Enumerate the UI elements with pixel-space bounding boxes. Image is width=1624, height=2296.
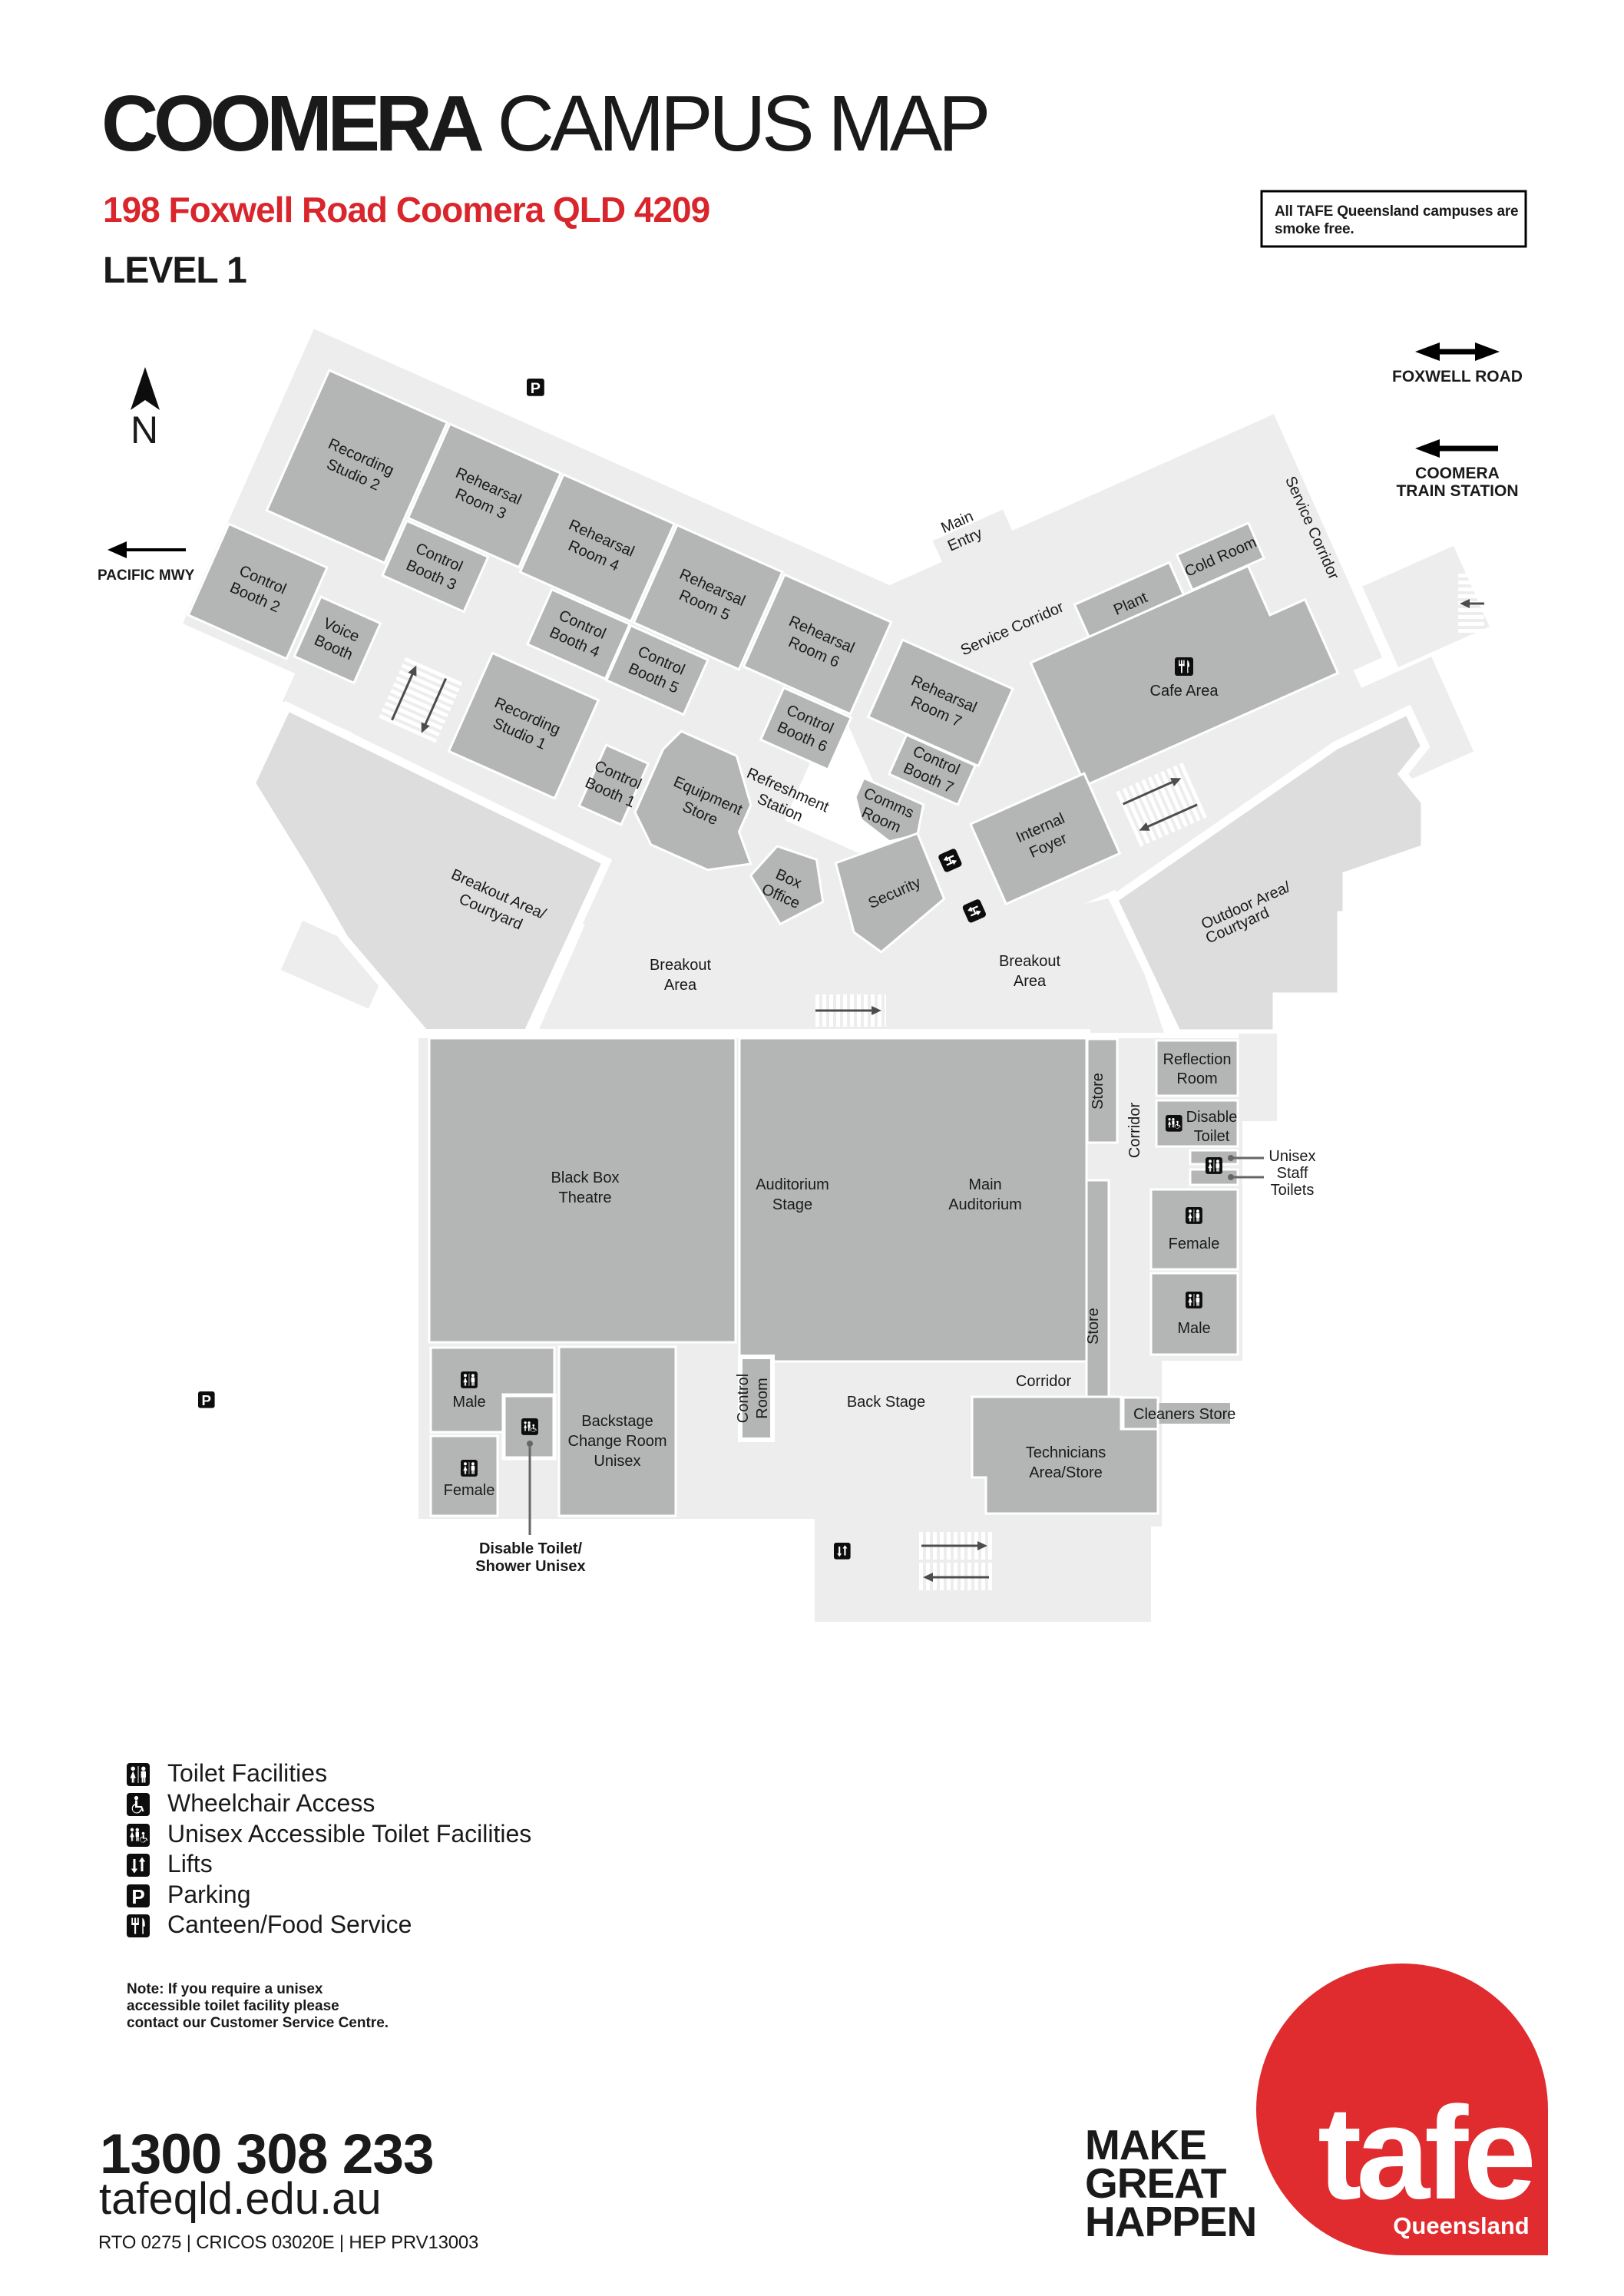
svg-text:Technicians: Technicians — [1026, 1444, 1106, 1461]
svg-text:Canteen/Food Service: Canteen/Food Service — [167, 1911, 412, 1938]
svg-text:Area: Area — [664, 977, 697, 994]
svg-text:HAPPEN: HAPPEN — [1085, 2198, 1256, 2245]
svg-text:TRAIN STATION: TRAIN STATION — [1396, 482, 1518, 500]
svg-text:Staff: Staff — [1277, 1165, 1308, 1182]
svg-text:Stage: Stage — [772, 1196, 812, 1213]
svg-text:tafeqld.edu.au: tafeqld.edu.au — [99, 2174, 382, 2224]
svg-text:N: N — [131, 409, 158, 452]
svg-text:Lifts: Lifts — [167, 1850, 213, 1877]
svg-text:Unisex Accessible Toilet Facil: Unisex Accessible Toilet Facilities — [167, 1820, 531, 1848]
svg-text:Control: Control — [735, 1374, 752, 1423]
svg-text:Back Stage: Back Stage — [847, 1394, 925, 1411]
svg-text:Unisex: Unisex — [1268, 1148, 1315, 1165]
svg-text:Room: Room — [1176, 1070, 1217, 1087]
svg-text:Disable Toilet/: Disable Toilet/ — [479, 1540, 583, 1557]
svg-text:smoke free.: smoke free. — [1275, 221, 1354, 237]
svg-text:Queensland: Queensland — [1393, 2212, 1529, 2239]
svg-text:198 Foxwell Road Coomera QLD 4: 198 Foxwell Road Coomera QLD 4209 — [103, 190, 709, 230]
svg-text:Reflection: Reflection — [1163, 1051, 1232, 1068]
svg-text:Auditorium: Auditorium — [756, 1176, 829, 1193]
svg-text:Toilet Facilities: Toilet Facilities — [167, 1759, 327, 1787]
svg-text:LEVEL 1: LEVEL 1 — [103, 250, 246, 291]
svg-text:contact our Customer Service C: contact our Customer Service Centre. — [127, 2015, 389, 2031]
svg-text:Male: Male — [452, 1394, 485, 1411]
svg-text:Breakout: Breakout — [999, 953, 1060, 970]
svg-text:Auditorium: Auditorium — [948, 1196, 1022, 1213]
svg-text:Cafe Area: Cafe Area — [1150, 683, 1219, 700]
svg-text:Note: If you require a unisex: Note: If you require a unisex — [127, 1981, 323, 1997]
svg-text:Change Room: Change Room — [568, 1433, 667, 1450]
svg-text:Cleaners Store: Cleaners Store — [1133, 1406, 1235, 1423]
svg-text:Parking: Parking — [167, 1881, 251, 1908]
svg-text:Male: Male — [1177, 1320, 1210, 1337]
svg-text:Corridor: Corridor — [1016, 1373, 1072, 1390]
svg-text:Store: Store — [1090, 1073, 1106, 1110]
svg-text:accessible toilet facility ple: accessible toilet facility please — [127, 1998, 339, 2014]
svg-text:Disable: Disable — [1186, 1109, 1238, 1126]
svg-text:Unisex: Unisex — [594, 1453, 640, 1470]
svg-text:RTO 0275 | CRICOS 03020E | HEP: RTO 0275 | CRICOS 03020E | HEP PRV13003 — [98, 2232, 478, 2253]
svg-text:PACIFIC MWY: PACIFIC MWY — [98, 567, 195, 584]
svg-text:Room: Room — [754, 1378, 771, 1418]
svg-text:Black Box: Black Box — [551, 1170, 620, 1186]
svg-text:FOXWELL ROAD: FOXWELL ROAD — [1392, 368, 1523, 385]
svg-text:Wheelchair Access: Wheelchair Access — [167, 1789, 375, 1817]
svg-text:Area/Store: Area/Store — [1029, 1464, 1103, 1481]
svg-text:Female: Female — [444, 1482, 495, 1499]
svg-text:Store: Store — [1085, 1308, 1102, 1345]
svg-text:Backstage: Backstage — [581, 1413, 653, 1430]
svg-text:Toilet: Toilet — [1194, 1128, 1230, 1145]
svg-text:Area: Area — [1014, 973, 1047, 990]
svg-text:Breakout: Breakout — [650, 957, 711, 974]
svg-text:Corridor: Corridor — [1126, 1103, 1143, 1159]
svg-text:COOMERA CAMPUS MAP: COOMERA CAMPUS MAP — [101, 79, 987, 167]
svg-text:Female: Female — [1169, 1236, 1220, 1252]
svg-text:tafe: tafe — [1318, 2079, 1532, 2227]
svg-text:Toilets: Toilets — [1271, 1182, 1315, 1199]
svg-text:Main: Main — [968, 1176, 1001, 1193]
svg-text:COOMERA: COOMERA — [1415, 465, 1500, 482]
svg-text:All TAFE Queensland campuses a: All TAFE Queensland campuses are — [1275, 203, 1518, 220]
svg-text:Shower Unisex: Shower Unisex — [475, 1558, 585, 1575]
svg-text:Theatre: Theatre — [559, 1189, 612, 1206]
